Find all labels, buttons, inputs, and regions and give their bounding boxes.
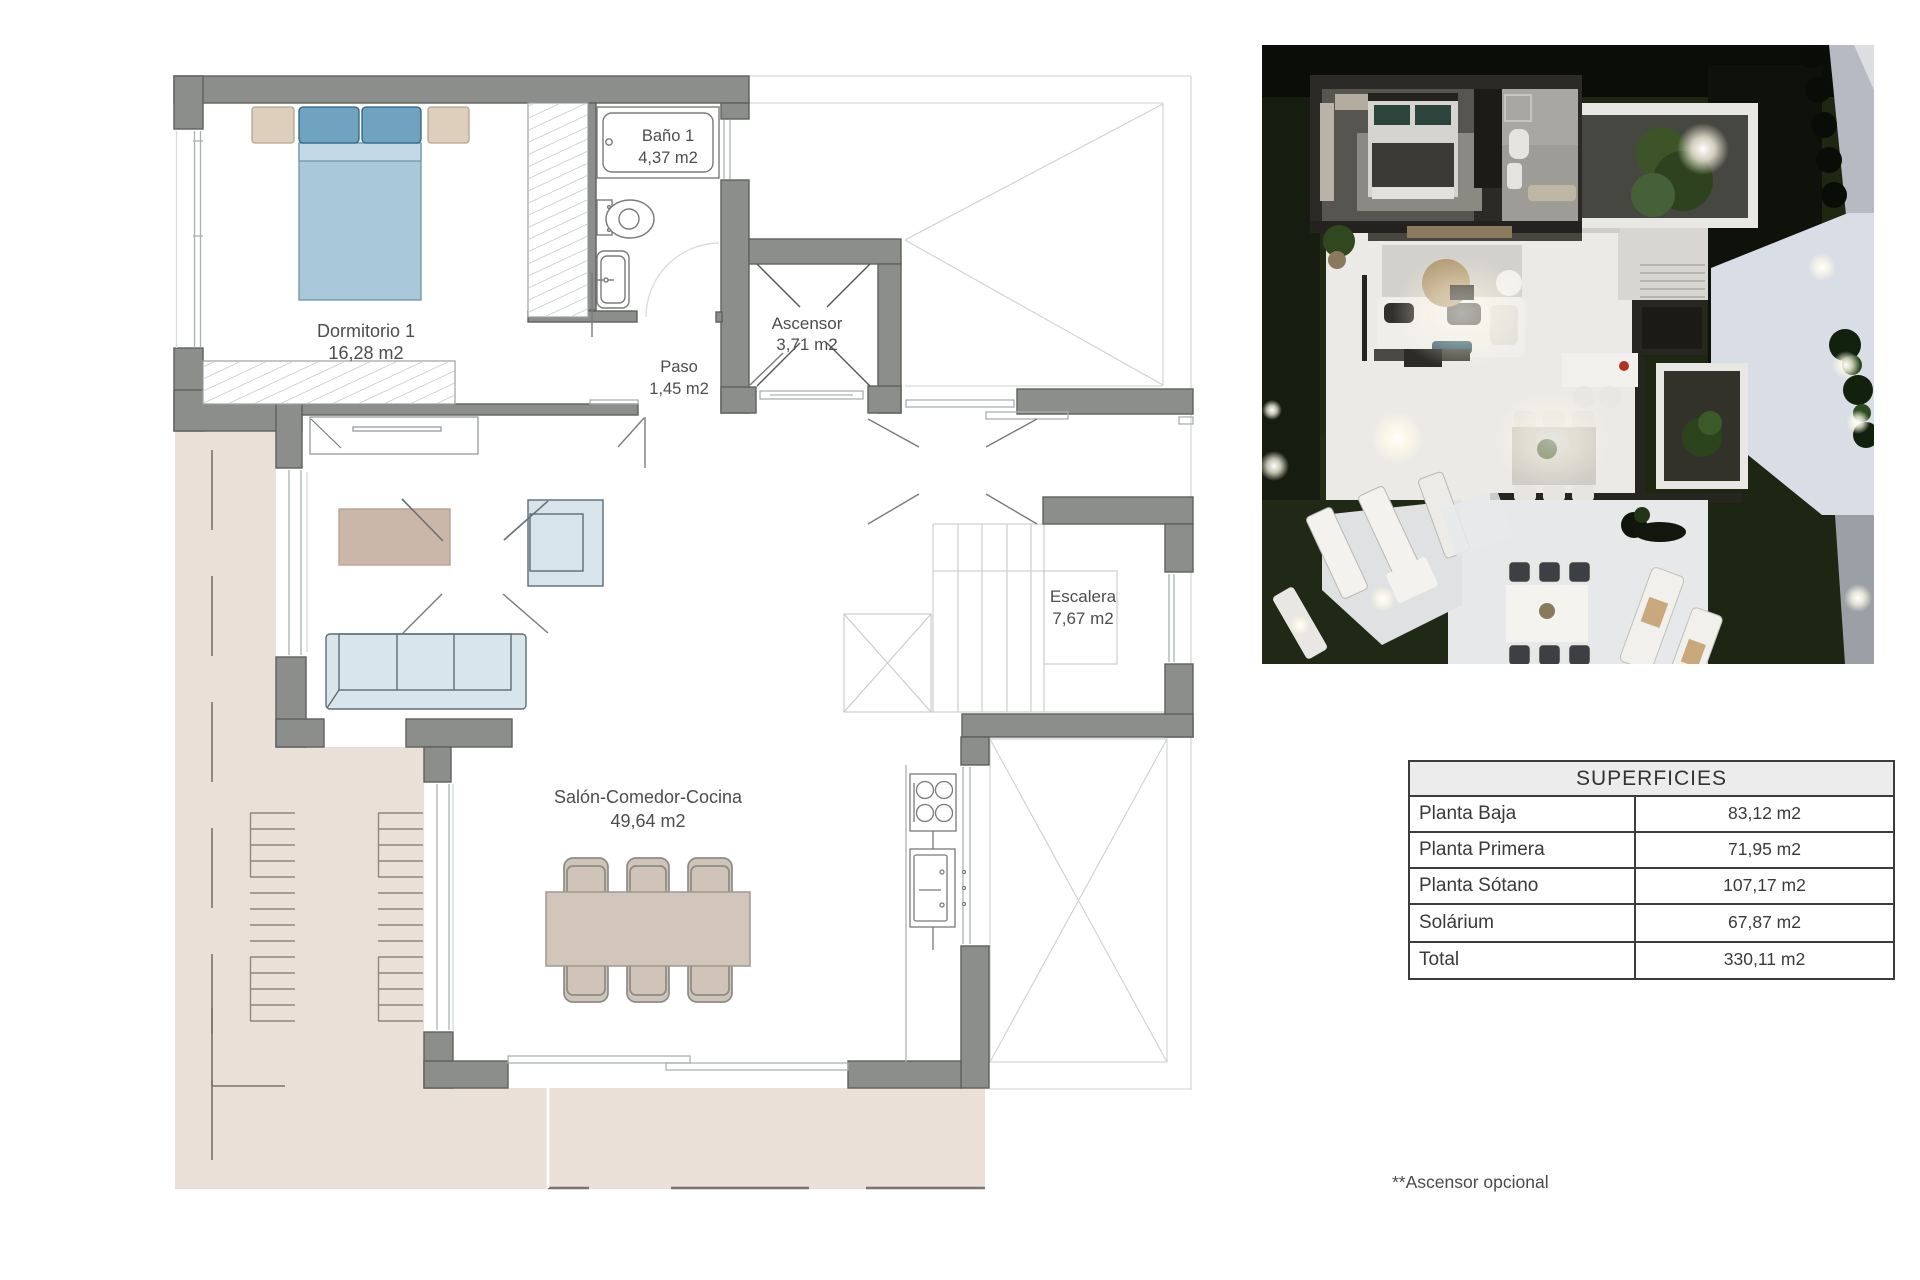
svg-text:Baño 1: Baño 1 xyxy=(642,127,694,145)
svg-text:Ascensor: Ascensor xyxy=(772,314,843,333)
svg-text:Dormitorio 1: Dormitorio 1 xyxy=(317,321,415,341)
svg-text:3,71 m2: 3,71 m2 xyxy=(776,335,837,354)
svg-text:Salón-Comedor-Cocina: Salón-Comedor-Cocina xyxy=(554,787,743,807)
svg-text:Escalera: Escalera xyxy=(1050,587,1117,606)
svg-text:7,67 m2: 7,67 m2 xyxy=(1052,609,1113,628)
svg-text:1,45 m2: 1,45 m2 xyxy=(649,380,709,398)
svg-text:49,64 m2: 49,64 m2 xyxy=(610,811,685,831)
svg-text:4,37 m2: 4,37 m2 xyxy=(638,149,698,167)
svg-text:16,28 m2: 16,28 m2 xyxy=(328,343,403,363)
svg-text:Paso: Paso xyxy=(660,358,698,376)
